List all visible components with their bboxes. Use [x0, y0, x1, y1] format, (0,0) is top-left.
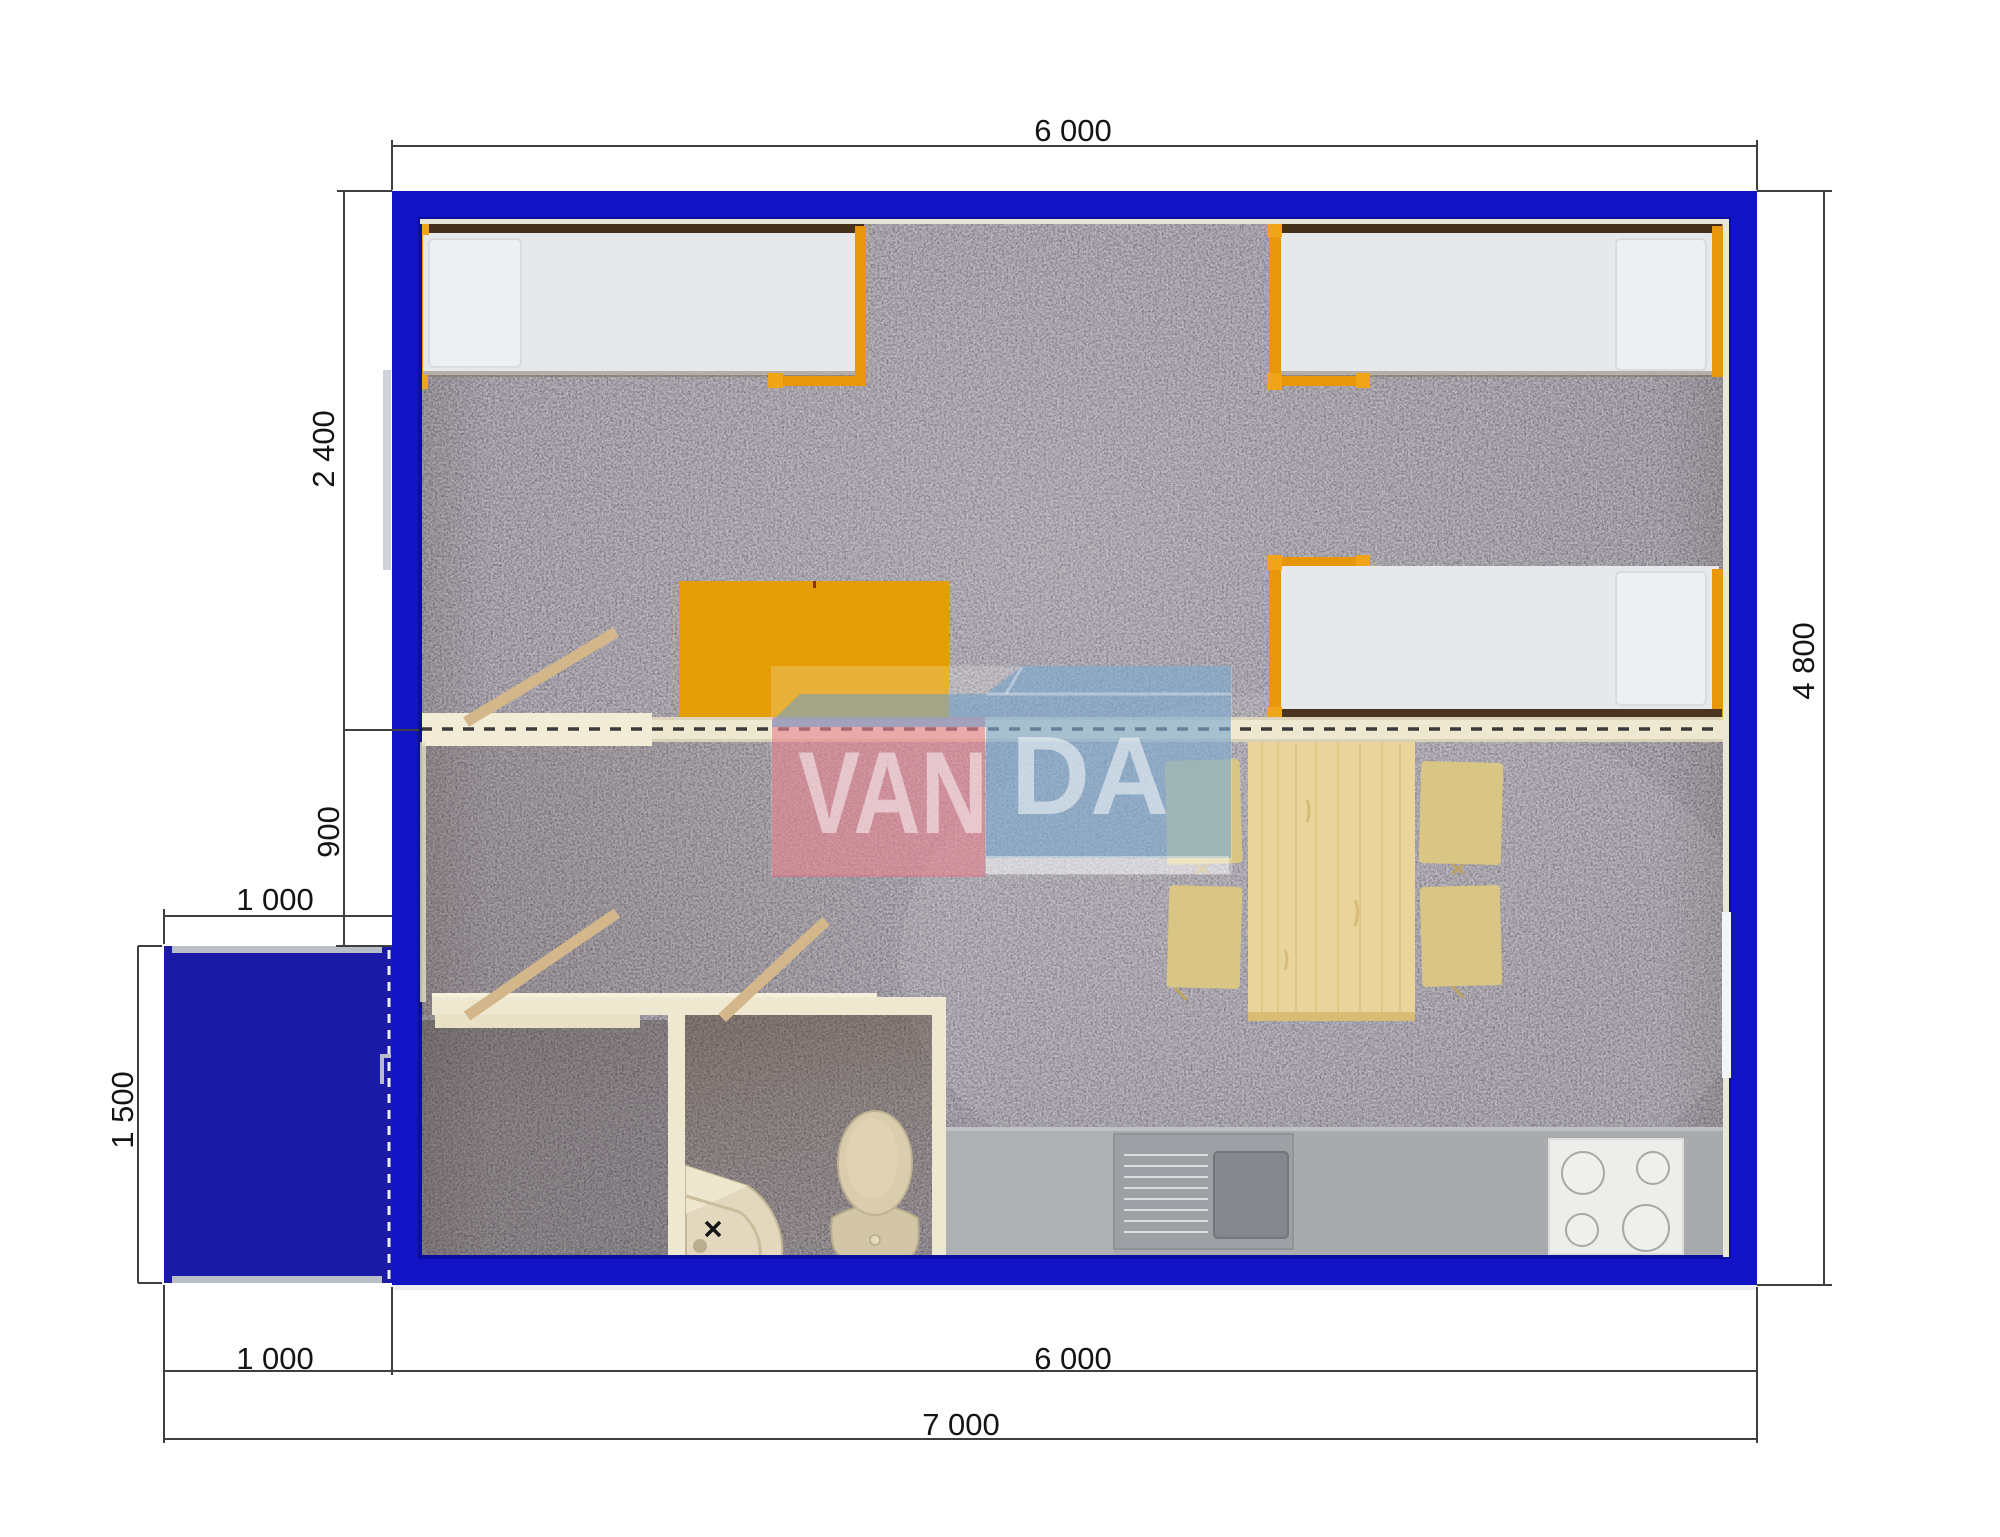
svg-text:1 500: 1 500: [105, 1071, 140, 1149]
svg-text:1 000: 1 000: [236, 882, 314, 917]
svg-text:DA: DA: [1011, 714, 1169, 838]
svg-text:6 000: 6 000: [1034, 1341, 1112, 1376]
svg-text:900: 900: [311, 806, 346, 858]
svg-text:4 800: 4 800: [1786, 622, 1821, 700]
svg-text:7 000: 7 000: [922, 1407, 1000, 1442]
svg-text:1 000: 1 000: [236, 1341, 314, 1376]
svg-text:VAN: VAN: [798, 727, 988, 858]
svg-text:6 000: 6 000: [1034, 113, 1112, 148]
svg-text:2 400: 2 400: [306, 410, 341, 488]
